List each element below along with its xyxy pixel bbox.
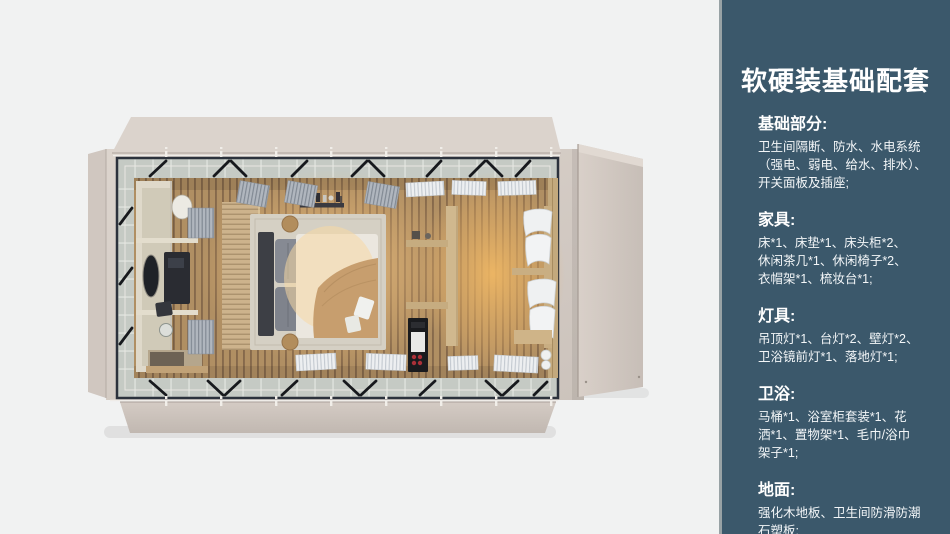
towel-roll — [542, 361, 551, 370]
section-body: 床*1、床垫*1、床头柜*2、 休闲茶几*1、休闲椅子*2、 衣帽架*1、梳妆台… — [758, 234, 940, 288]
wall-shelf — [406, 302, 448, 309]
section-lighting: 灯具: 吊顶灯*1、台灯*2、壁灯*2、 卫浴镜前灯*1、落地灯*1; — [758, 307, 940, 366]
bed-headboard — [258, 232, 274, 336]
left-flap — [88, 149, 106, 398]
section-body: 吊顶灯*1、台灯*2、壁灯*2、 卫浴镜前灯*1、落地灯*1; — [758, 330, 940, 366]
shower-head — [160, 324, 173, 337]
section-body: 卫生间隔断、防水、水电系统 （强电、弱电、给水、排水）、 开关面板及插座; — [758, 138, 940, 192]
bathroom-shelf — [136, 238, 198, 243]
section-heading: 地面: — [758, 481, 940, 501]
door-panel — [578, 144, 643, 397]
bed-area — [250, 214, 386, 350]
section-heading: 基础部分: — [758, 115, 940, 135]
pouf — [282, 216, 298, 232]
section-heading: 家具: — [758, 211, 940, 231]
section-furniture: 家具: 床*1、床垫*1、床头柜*2、 休闲茶几*1、休闲椅子*2、 衣帽架*1… — [758, 211, 940, 288]
pouf — [282, 334, 298, 350]
section-heading: 灯具: — [758, 307, 940, 327]
section-basics: 基础部分: 卫生间隔断、防水、水电系统 （强电、弱电、给水、排水）、 开关面板及… — [758, 115, 940, 192]
section-bathroom: 卫浴: 马桶*1、浴室柜套装*1、花 洒*1、置物架*1、毛巾/浴巾 架子*1; — [758, 385, 940, 462]
section-heading: 卫浴: — [758, 385, 940, 405]
mini-fridge — [408, 318, 428, 372]
panel-title: 软硬装基础配套 — [741, 65, 940, 97]
towel-roll — [541, 350, 551, 360]
section-body: 强化木地板、卫生间防滑防潮 石塑板; — [758, 504, 940, 534]
page: 软硬装基础配套 基础部分: 卫生间隔断、防水、水电系统 （强电、弱电、给水、排水… — [0, 0, 950, 534]
wall-shelf — [406, 240, 448, 247]
vanity-mirror — [143, 255, 159, 297]
section-flooring: 地面: 强化木地板、卫生间防滑防潮 石塑板; — [758, 481, 940, 534]
toilet — [155, 301, 173, 317]
bench — [514, 330, 552, 344]
floorplan-render — [0, 0, 719, 534]
panel-sections: 基础部分: 卫生间隔断、防水、水电系统 （强电、弱电、给水、排水）、 开关面板及… — [758, 115, 940, 534]
info-panel: 软硬装基础配套 基础部分: 卫生间隔断、防水、水电系统 （强电、弱电、给水、排水… — [722, 0, 950, 534]
section-body: 马桶*1、浴室柜套装*1、花 洒*1、置物架*1、毛巾/浴巾 架子*1; — [758, 408, 940, 462]
bottom-flap — [120, 402, 556, 433]
